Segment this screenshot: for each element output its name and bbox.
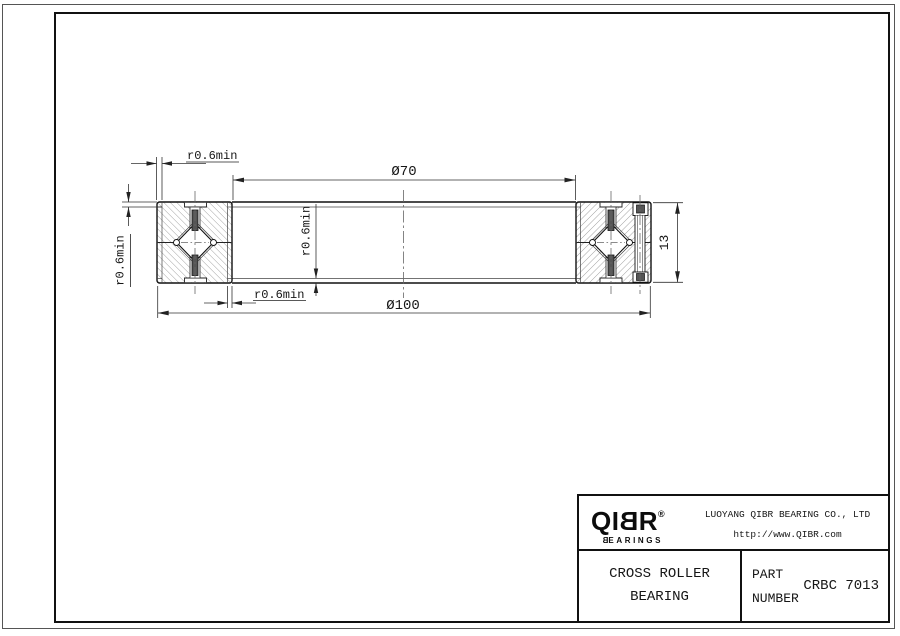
title-block-header-row: QIBR® BEARINGS LUOYANG QIBR BEARING CO.,… (579, 496, 888, 551)
product-name-line2: BEARING (630, 586, 689, 609)
part-number-label: PART NUMBER (752, 563, 799, 611)
outer-diameter-label: Ø100 (386, 298, 420, 314)
chamfer-label: r0.6min (300, 206, 314, 256)
drawing-sheet: Ø70 Ø100 13 r0.6min (0, 0, 900, 636)
registered-trademark-icon: ® (658, 509, 665, 519)
company-info: LUOYANG QIBR BEARING CO., LTD http://www… (687, 496, 888, 549)
section-width-label: 13 (657, 235, 672, 251)
right-ring-section (576, 191, 651, 294)
logo: QIBR® BEARINGS (579, 496, 687, 549)
part-number-value: CRBC 7013 (803, 578, 879, 594)
dimension-section-width: 13 (653, 203, 683, 283)
logo-flipped-b: B (619, 508, 638, 534)
cage-pocket-circle (627, 240, 633, 246)
logo-subtitle-flipped-b: B (600, 536, 608, 545)
chamfer-label: r0.6min (187, 149, 237, 163)
part-label-line1: PART (752, 563, 799, 587)
company-website: http://www.QIBR.com (687, 525, 888, 545)
bore-diameter-label: Ø70 (391, 164, 416, 180)
logo-subtitle: BEARINGS (600, 536, 687, 545)
bore-outline (232, 202, 576, 283)
chamfer-label: r0.6min (114, 235, 128, 285)
logo-wordmark: QIBR® (591, 501, 687, 534)
logo-letters: R (639, 506, 658, 536)
company-name: LUOYANG QIBR BEARING CO., LTD (687, 505, 888, 525)
cage-pocket-circle (590, 240, 596, 246)
dimension-chamfer-bore: r0.6min (300, 204, 319, 296)
part-label-line2: NUMBER (752, 587, 799, 611)
cage-pocket-circle (211, 240, 217, 246)
cage-pocket-circle (174, 240, 180, 246)
title-block: QIBR® BEARINGS LUOYANG QIBR BEARING CO.,… (577, 494, 890, 623)
product-name: CROSS ROLLER BEARING (579, 551, 742, 621)
dimension-chamfer-bottom: r0.6min (204, 286, 306, 308)
chamfer-label: r0.6min (254, 288, 304, 302)
dimension-bore-diameter: Ø70 (233, 164, 576, 200)
left-ring-section (157, 191, 232, 294)
dimension-chamfer-top: r0.6min (131, 149, 239, 200)
part-number-cell: PART NUMBER CRBC 7013 (742, 551, 888, 621)
dimension-chamfer-left: r0.6min (114, 184, 163, 287)
logo-letters: QI (591, 506, 619, 536)
title-block-detail-row: CROSS ROLLER BEARING PART NUMBER CRBC 70… (579, 551, 888, 621)
logo-subtitle-rest: EARINGS (608, 536, 663, 545)
dimension-outer-diameter: Ø100 (158, 286, 651, 318)
product-name-line1: CROSS ROLLER (609, 563, 710, 586)
